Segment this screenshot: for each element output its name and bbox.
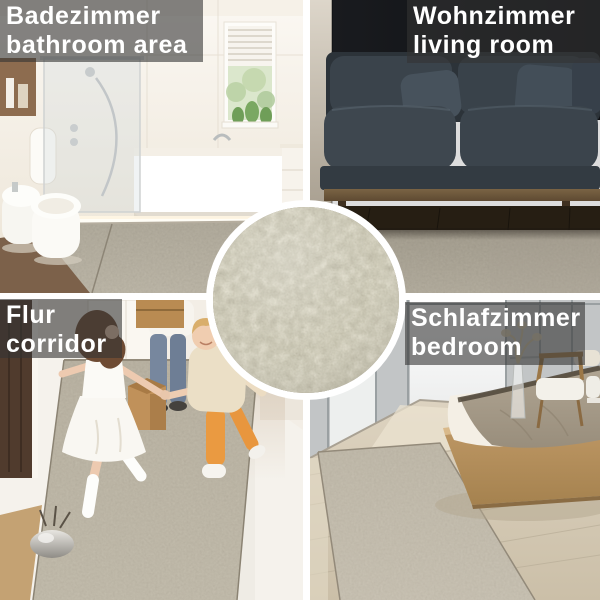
seat-cushion: [460, 106, 598, 170]
window: [222, 22, 278, 128]
label-bathroom-de: Badezimmer: [6, 2, 197, 31]
joined-hands: [160, 390, 170, 400]
label-corridor-en: corridor: [6, 330, 116, 359]
throw-pillow: [572, 58, 600, 114]
shower-head: [85, 67, 95, 77]
label-bedroom-en: bedroom: [411, 333, 579, 362]
label-bedroom-de: Schlafzimmer: [411, 304, 579, 333]
label-living-room: Wohnzimmer living room: [407, 0, 600, 63]
sofa: [320, 52, 600, 209]
wall-niche: [0, 58, 36, 116]
rug-room-collage: Badezimmer bathroom area Wohnzimmer livi…: [0, 0, 600, 600]
sofa-wood-base: [324, 189, 600, 201]
seat-cushion: [324, 106, 456, 170]
label-living-de: Wohnzimmer: [413, 2, 594, 31]
label-bedroom: Schlafzimmer bedroom: [405, 302, 585, 365]
carpet-texture-inset: [206, 200, 406, 400]
label-bathroom: Badezimmer bathroom area: [0, 0, 203, 62]
label-bathroom-en: bathroom area: [6, 31, 197, 60]
moving-box: [136, 300, 184, 328]
carpet-pile-closeup: [213, 207, 399, 393]
shower: [40, 56, 144, 212]
label-living-en: living room: [413, 31, 594, 60]
label-corridor: Flur corridor: [0, 299, 122, 358]
label-corridor-de: Flur: [6, 301, 116, 330]
